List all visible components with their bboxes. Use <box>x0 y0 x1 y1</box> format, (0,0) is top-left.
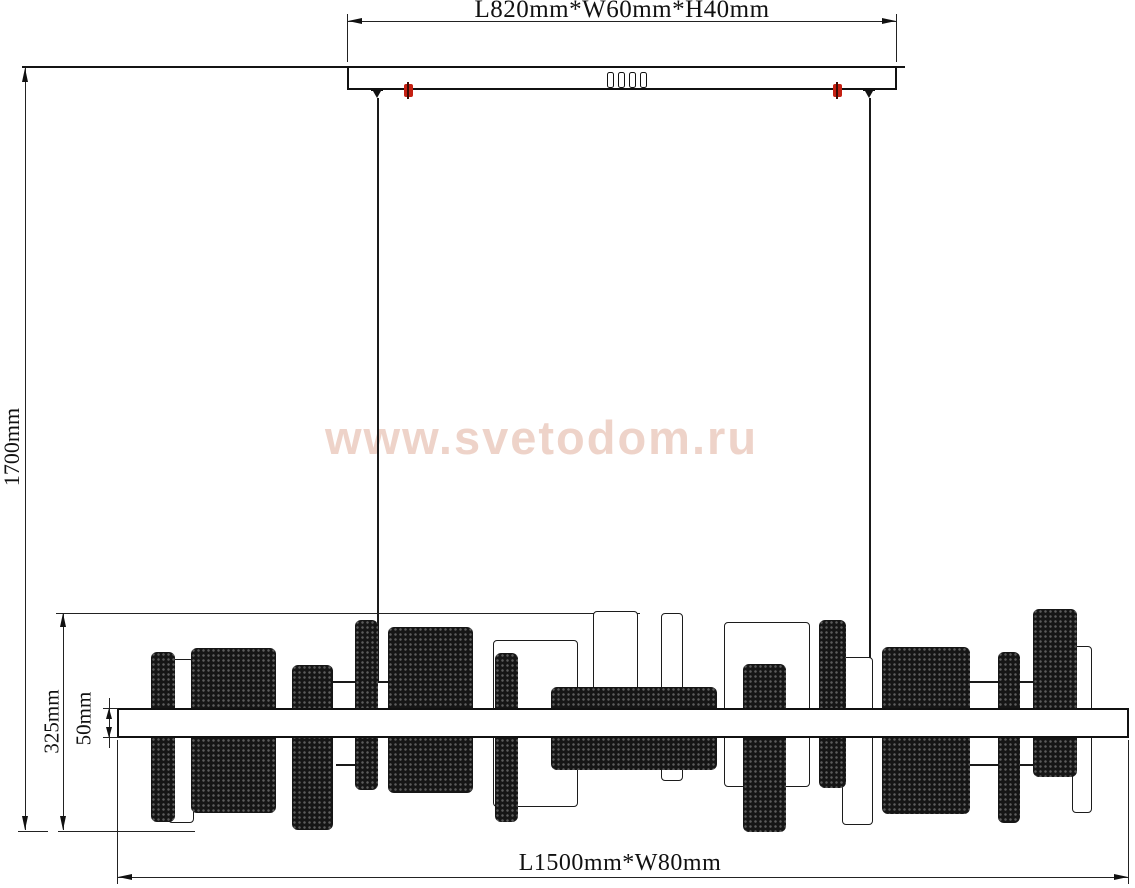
crystal-panel-dark <box>743 664 786 832</box>
wire-hook-left-tip-icon <box>373 91 381 98</box>
body-dim-arrow-right <box>1114 874 1128 880</box>
connector-rod <box>970 764 998 766</box>
crystal-panel-dark <box>292 665 333 830</box>
watermark: www.svetodom.ru <box>325 410 758 465</box>
body-extension-right <box>1128 740 1129 884</box>
canopy-slot <box>607 72 614 88</box>
crystal-panel-light <box>842 657 873 825</box>
body-bottom-extension-line-b <box>58 831 195 832</box>
body-dimension-label: L1500mm*W80mm <box>400 850 840 877</box>
technical-drawing: www.svetodom.ru L820mm*W60mm*H40mm 1700m… <box>0 0 1135 888</box>
drop-dim-arrow-bottom <box>22 816 28 830</box>
crystal-panel-dark <box>819 620 846 788</box>
cable-clip-left-icon <box>404 84 413 97</box>
suspension-wire <box>869 98 871 658</box>
drop-dim-arrow-top <box>22 68 28 82</box>
bar-height-dimension-label: 50mm <box>72 684 97 754</box>
canopy-slot <box>629 72 636 88</box>
cable-clip-right-icon <box>833 84 842 97</box>
bar-height-tick-bottom <box>103 737 118 738</box>
suspension-wire <box>377 98 379 681</box>
canopy-extension-right <box>896 14 897 62</box>
connector-rod <box>970 681 998 683</box>
canopy <box>347 66 897 90</box>
body-height-arrow-top <box>60 613 66 627</box>
connector-rod <box>1020 681 1033 683</box>
body-height-arrow-bottom <box>60 816 66 830</box>
body-extension-left <box>117 740 118 884</box>
body-height-dimension-line <box>63 613 64 830</box>
canopy-slot <box>618 72 625 88</box>
canopy-dimension-line <box>348 21 896 22</box>
crystal-panel-dark <box>355 620 378 790</box>
fixture-bar <box>117 708 1129 738</box>
wire-hook-right-tip-icon <box>865 91 873 98</box>
bar-height-tick-top <box>103 708 118 709</box>
body-top-extension-line <box>56 613 640 614</box>
canopy-dim-arrow-left <box>348 18 362 24</box>
drop-dimension-label: 1700mm <box>0 402 25 492</box>
crystal-panel-light <box>593 611 638 691</box>
canopy-slot <box>640 72 647 88</box>
connector-rod <box>1020 764 1033 766</box>
canopy-dim-arrow-right <box>882 18 896 24</box>
body-bottom-extension-line-a <box>18 831 48 832</box>
body-dim-arrow-left <box>118 874 132 880</box>
body-height-dimension-label: 325mm <box>40 682 65 762</box>
canopy-vent-slots <box>607 72 647 88</box>
body-dimension-line <box>118 877 1128 878</box>
drop-dimension-line <box>25 68 26 830</box>
bar-height-arrow-top <box>106 708 112 719</box>
crystal-panel-dark <box>1033 609 1077 777</box>
bar-height-dimension-line <box>109 698 110 748</box>
